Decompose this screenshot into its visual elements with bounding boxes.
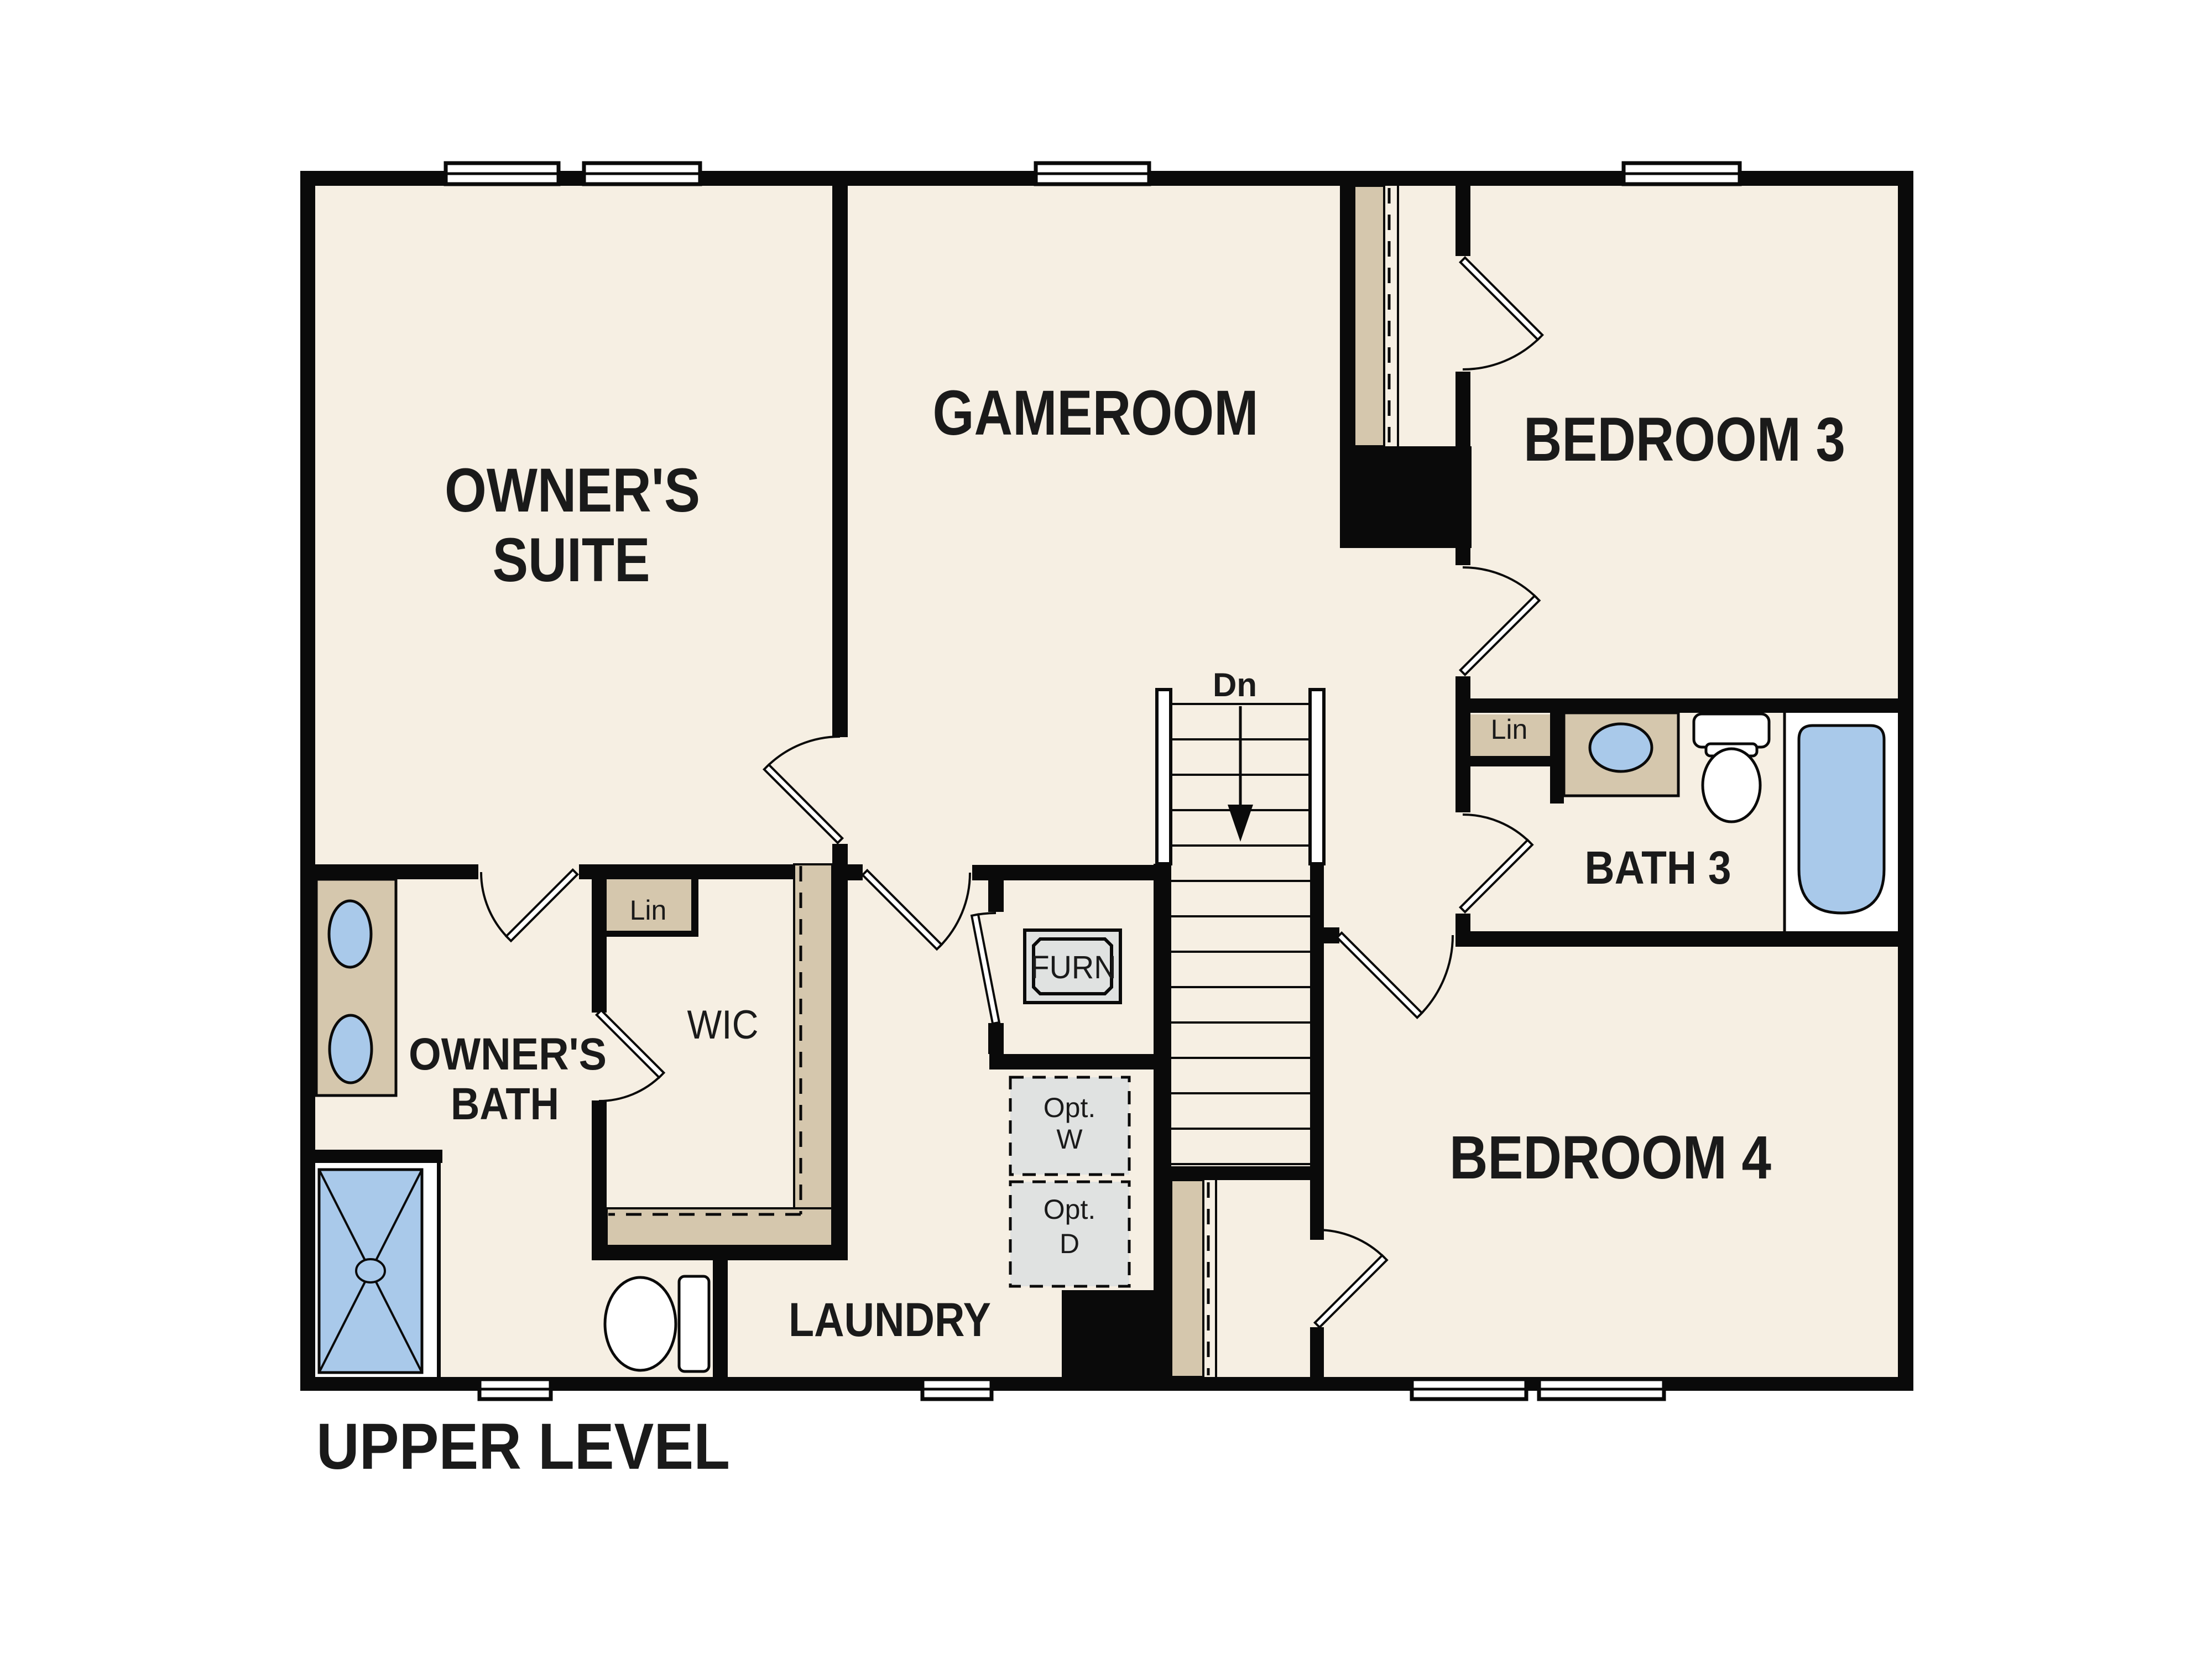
svg-text:GAMEROOM: GAMEROOM bbox=[933, 378, 1259, 448]
svg-text:FURN: FURN bbox=[1031, 950, 1117, 985]
svg-text:OWNER'S: OWNER'S bbox=[445, 456, 700, 525]
svg-text:LAUNDRY: LAUNDRY bbox=[789, 1293, 991, 1347]
svg-text:BEDROOM 4: BEDROOM 4 bbox=[1449, 1124, 1771, 1192]
svg-text:D: D bbox=[1060, 1228, 1079, 1259]
svg-text:BATH 3: BATH 3 bbox=[1585, 842, 1731, 894]
svg-text:Dn: Dn bbox=[1213, 666, 1257, 703]
svg-text:UPPER LEVEL: UPPER LEVEL bbox=[316, 1410, 730, 1483]
svg-text:BEDROOM 3: BEDROOM 3 bbox=[1524, 405, 1845, 474]
svg-text:Lin: Lin bbox=[1491, 714, 1528, 745]
svg-text:W: W bbox=[1056, 1124, 1083, 1155]
svg-text:Lin: Lin bbox=[630, 895, 667, 926]
svg-text:BATH: BATH bbox=[451, 1079, 559, 1129]
svg-text:Opt.: Opt. bbox=[1044, 1194, 1095, 1225]
svg-text:Opt.: Opt. bbox=[1044, 1092, 1095, 1123]
svg-text:SUITE: SUITE bbox=[493, 525, 650, 594]
svg-text:WIC: WIC bbox=[687, 1003, 759, 1047]
svg-text:OWNER'S: OWNER'S bbox=[409, 1029, 607, 1079]
